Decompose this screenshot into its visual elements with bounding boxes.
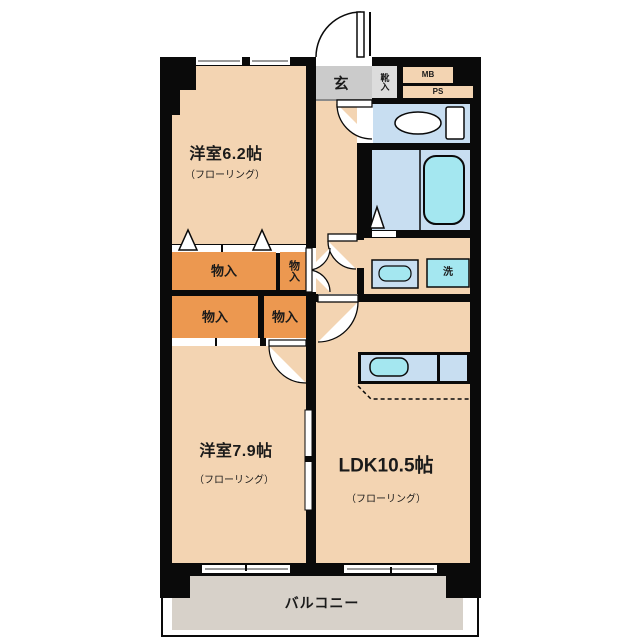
bedroom1-label: 洋室6.2帖 xyxy=(189,147,262,163)
bathtub-icon xyxy=(420,150,464,230)
closet-swing-door xyxy=(269,340,306,383)
shoe-cabinet-label: 靴入 xyxy=(380,73,389,91)
toilet-icon xyxy=(395,107,464,139)
washing-machine-label: 洗 xyxy=(443,268,453,278)
closet-lower-right-label: 物入 xyxy=(272,311,298,324)
ldk-door xyxy=(318,295,358,342)
entrance-label: 玄 xyxy=(333,77,348,92)
bedroom2-floor-note: （フローリング） xyxy=(194,476,274,486)
folding-door-marks xyxy=(179,207,384,250)
counter-dashed-edge xyxy=(358,386,470,399)
kitchen-sink-icon xyxy=(370,358,408,376)
room-sliding-door xyxy=(305,410,312,510)
bedroom1-floor-note: （フローリング） xyxy=(185,171,265,181)
pipe-space-label: PS xyxy=(433,88,444,96)
closet-lower-left-label: 物入 xyxy=(202,311,228,324)
slide-band-ticks xyxy=(216,244,222,346)
ldk-floor-note: （フローリング） xyxy=(346,495,426,505)
washbasin-icon xyxy=(372,260,418,288)
closet-upper-wide-label: 物入 xyxy=(211,265,237,278)
ldk-label: LDK10.5帖 xyxy=(338,457,433,476)
bedroom2-label: 洋室7.9帖 xyxy=(199,444,272,460)
meter-box-label: MB xyxy=(422,71,434,79)
balcony-label: バルコニー xyxy=(285,596,360,610)
entrance-door xyxy=(316,12,370,57)
floor-plan-page: { "plan_type": "floor-plan", "rooms": { … xyxy=(0,0,640,640)
closet-upper-side-label: 物入 xyxy=(288,260,299,282)
toilet-door xyxy=(337,100,372,139)
closet-double-door xyxy=(306,248,330,292)
window-glazing xyxy=(198,61,434,569)
washroom-door xyxy=(328,234,357,269)
plan-symbol-layer xyxy=(0,0,640,640)
